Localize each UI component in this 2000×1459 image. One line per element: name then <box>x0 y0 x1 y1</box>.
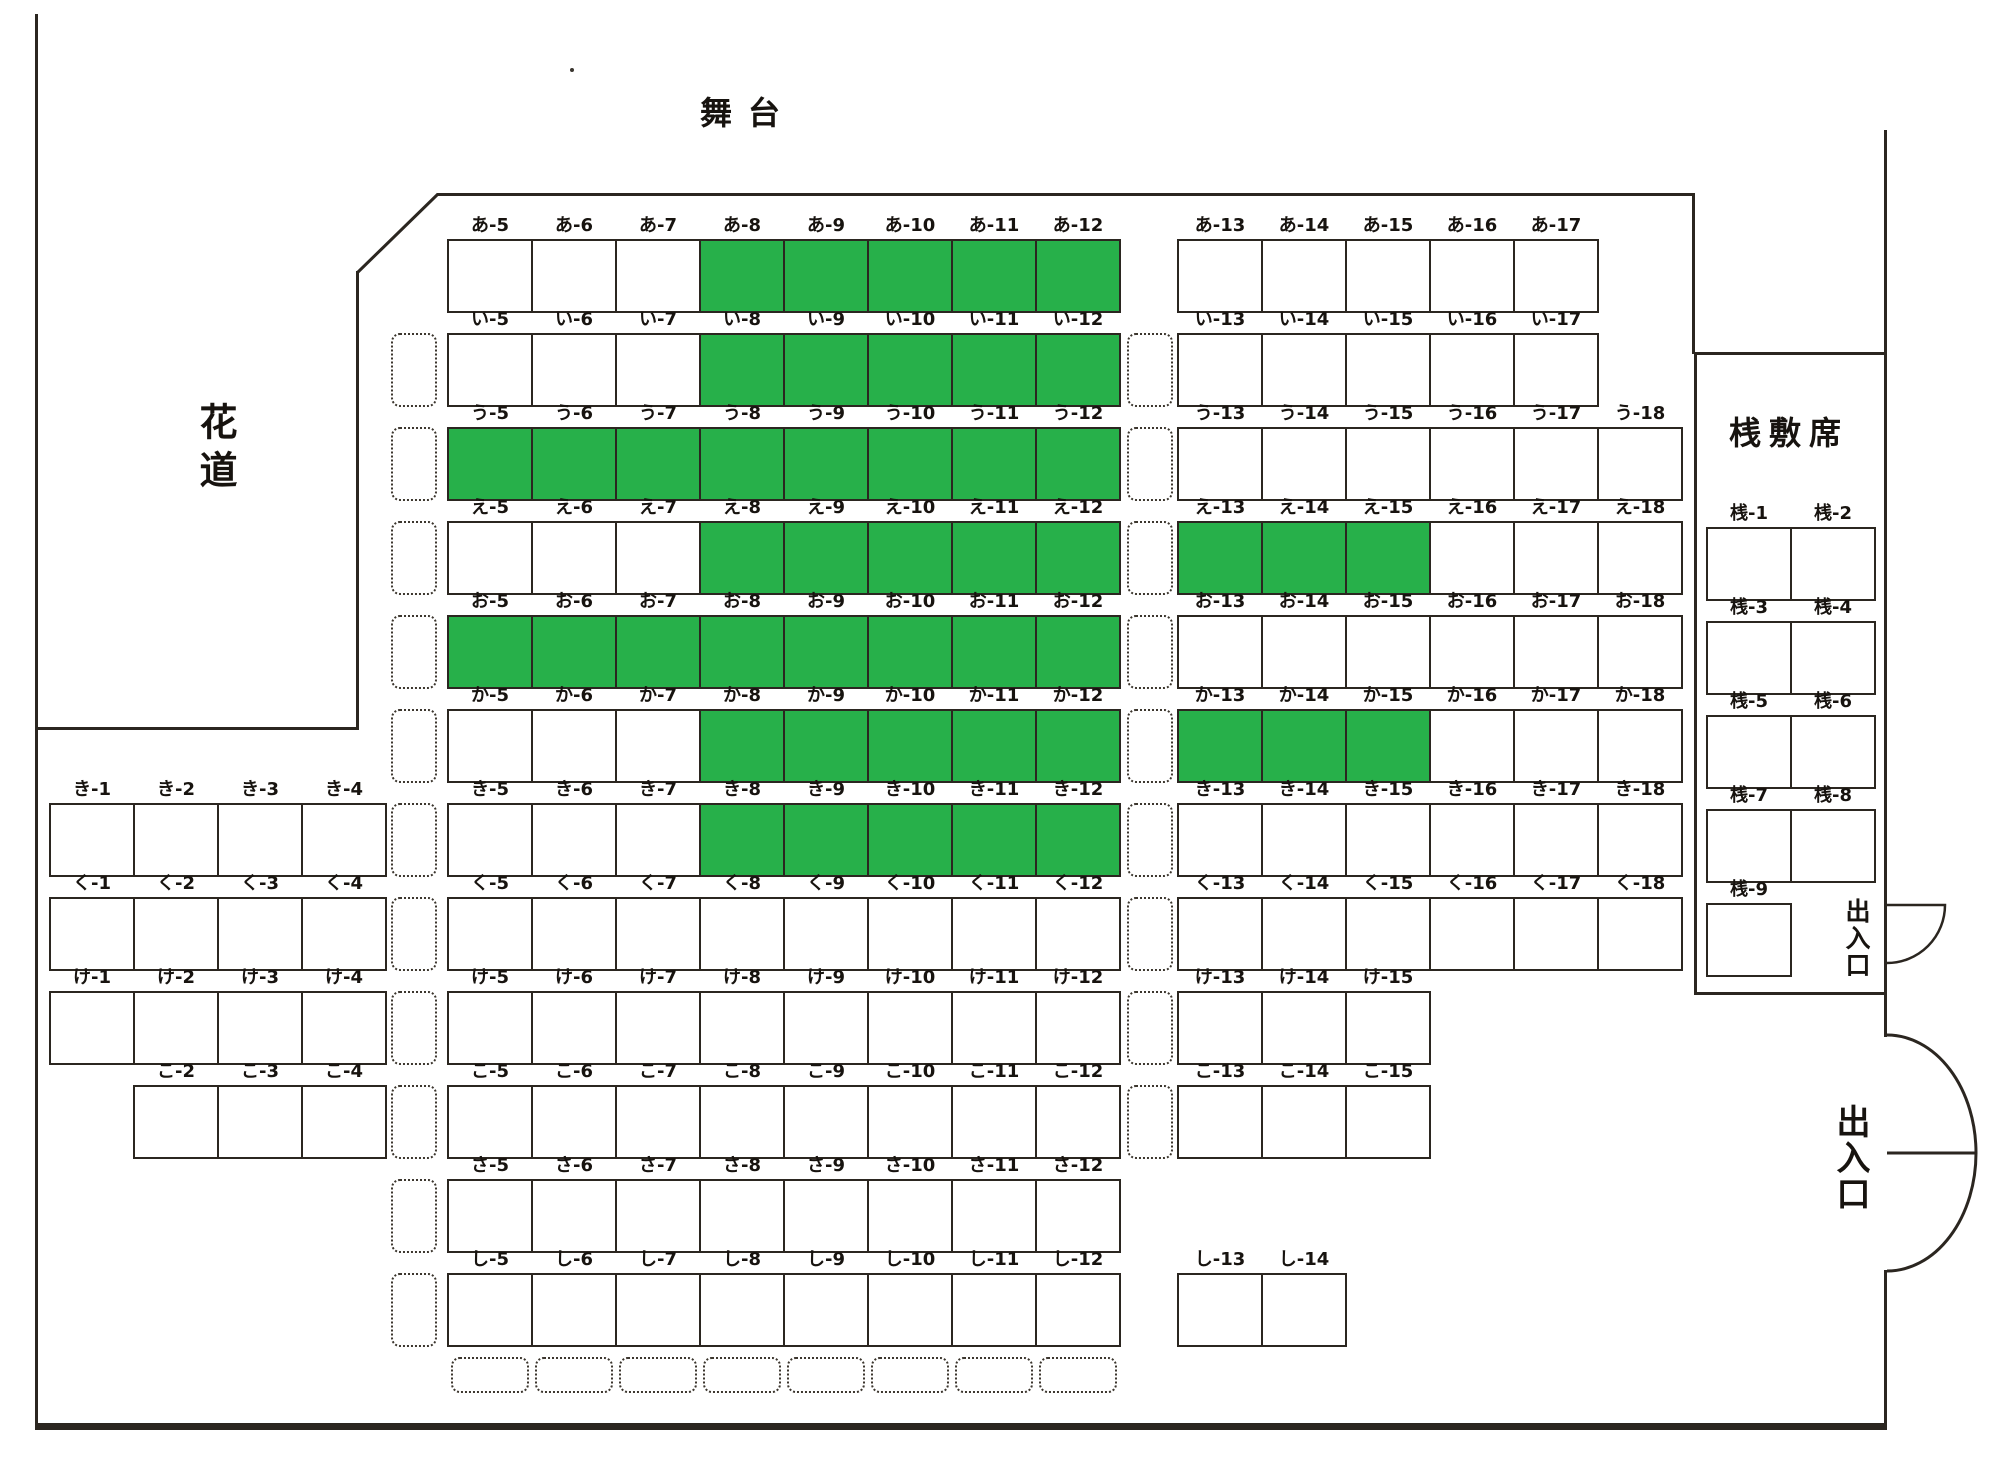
seat[interactable] <box>867 333 953 407</box>
seat[interactable] <box>1261 333 1347 407</box>
seat[interactable] <box>951 991 1037 1065</box>
seat[interactable] <box>1177 803 1263 877</box>
sajiki-seat[interactable] <box>1706 809 1792 883</box>
aisle-placeholder-box <box>1127 333 1173 407</box>
seat-label: け-7 <box>615 967 701 989</box>
seat-label: さ-6 <box>531 1155 617 1177</box>
seat[interactable] <box>1513 709 1599 783</box>
seat[interactable] <box>1261 897 1347 971</box>
seat[interactable] <box>1345 615 1431 689</box>
seat[interactable] <box>699 1179 785 1253</box>
seat[interactable] <box>301 897 387 971</box>
seat-label: い-13 <box>1177 309 1263 331</box>
seat[interactable] <box>447 1179 533 1253</box>
seat[interactable] <box>531 521 617 595</box>
seat[interactable] <box>1345 897 1431 971</box>
seat[interactable] <box>951 1273 1037 1347</box>
seat[interactable] <box>133 803 219 877</box>
seat-label: う-12 <box>1035 403 1121 425</box>
seat-label: え-11 <box>951 497 1037 519</box>
seat-label: か-6 <box>531 685 617 707</box>
seat[interactable] <box>531 709 617 783</box>
seat-label: い-17 <box>1513 309 1599 331</box>
seat-label: こ-12 <box>1035 1061 1121 1083</box>
seat[interactable] <box>1035 897 1121 971</box>
seat[interactable] <box>1177 991 1263 1065</box>
sajiki-seat-label: 桟-7 <box>1706 785 1792 807</box>
sajiki-seat-label: 桟-5 <box>1706 691 1792 713</box>
seat-label: お-13 <box>1177 591 1263 613</box>
seat-label: あ-13 <box>1177 215 1263 237</box>
seat[interactable] <box>951 709 1037 783</box>
seat-label: え-14 <box>1261 497 1347 519</box>
main-door-swing-icon <box>1887 1035 1976 1271</box>
seat[interactable] <box>1597 427 1683 501</box>
seat[interactable] <box>951 239 1037 313</box>
stage-label: 舞台 <box>628 88 868 134</box>
seat[interactable] <box>1261 709 1347 783</box>
seat-label: い-14 <box>1261 309 1347 331</box>
aisle-placeholder-box <box>391 1085 437 1159</box>
seat-label: お-9 <box>783 591 869 613</box>
seat[interactable] <box>49 897 135 971</box>
seat[interactable] <box>1035 427 1121 501</box>
seat[interactable] <box>133 897 219 971</box>
seat[interactable] <box>699 333 785 407</box>
seat[interactable] <box>951 615 1037 689</box>
seat-label: く-2 <box>133 873 219 895</box>
seat-label: あ-10 <box>867 215 953 237</box>
seat-label: く-18 <box>1597 873 1683 895</box>
seat[interactable] <box>1177 333 1263 407</box>
seat[interactable] <box>783 239 869 313</box>
seat[interactable] <box>615 1085 701 1159</box>
seat[interactable] <box>1597 615 1683 689</box>
seat-label: く-3 <box>217 873 303 895</box>
bottom-placeholder-box <box>1039 1357 1117 1393</box>
seat[interactable] <box>867 521 953 595</box>
seat-label: き-7 <box>615 779 701 801</box>
aisle-placeholder-box <box>391 521 437 595</box>
seat-label: か-8 <box>699 685 785 707</box>
seat-label: く-9 <box>783 873 869 895</box>
seat-label: き-5 <box>447 779 533 801</box>
aisle-placeholder-box <box>1127 897 1173 971</box>
seat[interactable] <box>1261 239 1347 313</box>
seat[interactable] <box>447 239 533 313</box>
seat[interactable] <box>1035 521 1121 595</box>
seat-label: え-16 <box>1429 497 1515 519</box>
aisle-placeholder-box <box>1127 1085 1173 1159</box>
seat[interactable] <box>615 521 701 595</box>
sajiki-seat-label: 桟-1 <box>1706 503 1792 525</box>
seat-label: く-11 <box>951 873 1037 895</box>
seat-label: く-13 <box>1177 873 1263 895</box>
seat[interactable] <box>699 709 785 783</box>
seat[interactable] <box>447 1085 533 1159</box>
seat[interactable] <box>1261 803 1347 877</box>
seat-label: あ-9 <box>783 215 869 237</box>
seat[interactable] <box>1345 333 1431 407</box>
seat[interactable] <box>1429 897 1515 971</box>
aisle-placeholder-box <box>391 897 437 971</box>
seat-label: お-15 <box>1345 591 1431 613</box>
seat-label: え-10 <box>867 497 953 519</box>
seat[interactable] <box>1429 615 1515 689</box>
seat[interactable] <box>217 991 303 1065</box>
seat-label: こ-5 <box>447 1061 533 1083</box>
seat-label: あ-8 <box>699 215 785 237</box>
seat[interactable] <box>783 615 869 689</box>
seat-label: う-16 <box>1429 403 1515 425</box>
seat[interactable] <box>1597 803 1683 877</box>
seat-label: け-5 <box>447 967 533 989</box>
seat[interactable] <box>133 991 219 1065</box>
seat-label: く-6 <box>531 873 617 895</box>
seat[interactable] <box>1345 803 1431 877</box>
seat[interactable] <box>615 991 701 1065</box>
seat[interactable] <box>1597 709 1683 783</box>
sajiki-door-swing-icon <box>1887 905 1945 963</box>
seat-label: え-6 <box>531 497 617 519</box>
seat[interactable] <box>531 897 617 971</box>
seat-label: け-9 <box>783 967 869 989</box>
seat-label: け-4 <box>301 967 387 989</box>
seat[interactable] <box>1177 427 1263 501</box>
seat[interactable] <box>783 521 869 595</box>
seat-label: え-5 <box>447 497 533 519</box>
seat[interactable] <box>531 239 617 313</box>
theater-seating-chart: 舞台 花道 桟敷席 出入口 出入口 あ-5あ-6あ-7あ-8あ-9あ-10あ-1… <box>0 0 2000 1459</box>
seat[interactable] <box>1035 803 1121 877</box>
seat[interactable] <box>867 709 953 783</box>
seat[interactable] <box>1035 615 1121 689</box>
seat-label: く-10 <box>867 873 953 895</box>
seat[interactable] <box>1429 333 1515 407</box>
seat-label: い-11 <box>951 309 1037 331</box>
seat-label: こ-8 <box>699 1061 785 1083</box>
seat[interactable] <box>951 897 1037 971</box>
seat[interactable] <box>447 897 533 971</box>
seat[interactable] <box>951 333 1037 407</box>
seat-label: え-18 <box>1597 497 1683 519</box>
seat[interactable] <box>699 803 785 877</box>
seat-label: こ-6 <box>531 1061 617 1083</box>
seat-label: き-2 <box>133 779 219 801</box>
seat-label: お-10 <box>867 591 953 613</box>
hanamichi-side-wall <box>356 271 359 730</box>
seat[interactable] <box>1345 991 1431 1065</box>
seat[interactable] <box>531 1179 617 1253</box>
sajiki-seat[interactable] <box>1790 809 1876 883</box>
seat[interactable] <box>615 1273 701 1347</box>
seat[interactable] <box>447 1273 533 1347</box>
seat[interactable] <box>1345 427 1431 501</box>
seat[interactable] <box>615 709 701 783</box>
seat-label: こ-4 <box>301 1061 387 1083</box>
seat-label: き-16 <box>1429 779 1515 801</box>
seat-label: え-7 <box>615 497 701 519</box>
seat[interactable] <box>447 615 533 689</box>
seat-label: か-15 <box>1345 685 1431 707</box>
seat[interactable] <box>531 427 617 501</box>
seat[interactable] <box>1177 1085 1263 1159</box>
aisle-placeholder-box <box>391 803 437 877</box>
seat[interactable] <box>531 615 617 689</box>
seat-label: い-7 <box>615 309 701 331</box>
seat[interactable] <box>783 333 869 407</box>
seat[interactable] <box>615 427 701 501</box>
seat[interactable] <box>699 1085 785 1159</box>
seat[interactable] <box>217 803 303 877</box>
seat-label: え-8 <box>699 497 785 519</box>
sajiki-seat[interactable] <box>1706 715 1792 789</box>
seat[interactable] <box>615 615 701 689</box>
seat[interactable] <box>1429 427 1515 501</box>
sajiki-seat[interactable] <box>1706 527 1792 601</box>
seat[interactable] <box>783 897 869 971</box>
seat-label: し-7 <box>615 1249 701 1271</box>
seat-label: く-7 <box>615 873 701 895</box>
seat[interactable] <box>1035 1179 1121 1253</box>
seat[interactable] <box>783 709 869 783</box>
seat-label: さ-9 <box>783 1155 869 1177</box>
seat[interactable] <box>1513 897 1599 971</box>
seat-label: き-1 <box>49 779 135 801</box>
sajiki-seat[interactable] <box>1790 715 1876 789</box>
bottom-wall <box>35 1423 1887 1430</box>
aisle-placeholder-box <box>391 1273 437 1347</box>
seat[interactable] <box>783 427 869 501</box>
seat[interactable] <box>699 615 785 689</box>
seat[interactable] <box>1035 1273 1121 1347</box>
seat[interactable] <box>1177 239 1263 313</box>
seat[interactable] <box>1035 239 1121 313</box>
seat-label: お-11 <box>951 591 1037 613</box>
seat[interactable] <box>49 803 135 877</box>
seat-label: こ-2 <box>133 1061 219 1083</box>
seat[interactable] <box>1261 427 1347 501</box>
seat[interactable] <box>615 803 701 877</box>
seat-label: か-7 <box>615 685 701 707</box>
seat-label: う-17 <box>1513 403 1599 425</box>
seat[interactable] <box>783 1273 869 1347</box>
seat-label: け-10 <box>867 967 953 989</box>
aisle-placeholder-box <box>391 333 437 407</box>
seat-label: お-8 <box>699 591 785 613</box>
seat[interactable] <box>1597 897 1683 971</box>
seat-label: き-15 <box>1345 779 1431 801</box>
seat[interactable] <box>783 1179 869 1253</box>
seat-label: し-11 <box>951 1249 1037 1271</box>
seat[interactable] <box>1035 1085 1121 1159</box>
seat[interactable] <box>1177 615 1263 689</box>
seat[interactable] <box>447 709 533 783</box>
seat-label: さ-10 <box>867 1155 953 1177</box>
seat[interactable] <box>867 1085 953 1159</box>
sajiki-seat-label: 桟-8 <box>1790 785 1876 807</box>
seat-label: し-9 <box>783 1249 869 1271</box>
seat[interactable] <box>1035 709 1121 783</box>
sajiki-seat[interactable] <box>1706 903 1792 977</box>
seat[interactable] <box>615 333 701 407</box>
seat[interactable] <box>783 1085 869 1159</box>
seat[interactable] <box>1513 427 1599 501</box>
seat[interactable] <box>1177 1273 1263 1347</box>
seat[interactable] <box>1035 333 1121 407</box>
seat[interactable] <box>531 1273 617 1347</box>
seat[interactable] <box>531 1085 617 1159</box>
sajiki-seat-label: 桟-6 <box>1790 691 1876 713</box>
seat-label: し-8 <box>699 1249 785 1271</box>
seat[interactable] <box>1345 239 1431 313</box>
bottom-placeholder-box <box>703 1357 781 1393</box>
seat[interactable] <box>951 1179 1037 1253</box>
seat-label: い-9 <box>783 309 869 331</box>
seat[interactable] <box>133 1085 219 1159</box>
seat[interactable] <box>447 427 533 501</box>
seat[interactable] <box>1035 991 1121 1065</box>
seat[interactable] <box>531 803 617 877</box>
seat-label: け-3 <box>217 967 303 989</box>
seat-label: え-12 <box>1035 497 1121 519</box>
seat-label: き-14 <box>1261 779 1347 801</box>
seat-label: き-9 <box>783 779 869 801</box>
seat[interactable] <box>1429 709 1515 783</box>
seat[interactable] <box>217 897 303 971</box>
seat[interactable] <box>699 991 785 1065</box>
seat[interactable] <box>1345 709 1431 783</box>
seat[interactable] <box>867 803 953 877</box>
seat[interactable] <box>531 333 617 407</box>
seat[interactable] <box>1513 239 1599 313</box>
seat-label: け-12 <box>1035 967 1121 989</box>
sajiki-seat[interactable] <box>1790 621 1876 695</box>
seat[interactable] <box>783 991 869 1065</box>
seat[interactable] <box>447 333 533 407</box>
seat[interactable] <box>783 803 869 877</box>
seat[interactable] <box>1597 521 1683 595</box>
seat-label: く-14 <box>1261 873 1347 895</box>
seat[interactable] <box>1261 991 1347 1065</box>
bottom-placeholder-box <box>451 1357 529 1393</box>
seat[interactable] <box>1513 803 1599 877</box>
aisle-placeholder-box <box>391 991 437 1065</box>
sajiki-seat[interactable] <box>1790 527 1876 601</box>
seat[interactable] <box>699 427 785 501</box>
seat[interactable] <box>699 1273 785 1347</box>
seat-label: く-8 <box>699 873 785 895</box>
seat[interactable] <box>301 991 387 1065</box>
seat[interactable] <box>699 521 785 595</box>
sajiki-seat-label: 桟-3 <box>1706 597 1792 619</box>
seat[interactable] <box>1345 1085 1431 1159</box>
seat-label: う-5 <box>447 403 533 425</box>
seat[interactable] <box>1261 521 1347 595</box>
seat-label: け-1 <box>49 967 135 989</box>
seat[interactable] <box>1513 333 1599 407</box>
seat[interactable] <box>867 1179 953 1253</box>
seat[interactable] <box>49 991 135 1065</box>
seat-label: き-3 <box>217 779 303 801</box>
seat-label: う-9 <box>783 403 869 425</box>
seat[interactable] <box>447 521 533 595</box>
seat[interactable] <box>951 427 1037 501</box>
seat[interactable] <box>867 239 953 313</box>
seat[interactable] <box>615 897 701 971</box>
seat-label: き-18 <box>1597 779 1683 801</box>
sajiki-section-label: 桟敷席 <box>1694 408 1884 454</box>
seat[interactable] <box>1261 615 1347 689</box>
seat-label: か-16 <box>1429 685 1515 707</box>
seat[interactable] <box>301 803 387 877</box>
seat[interactable] <box>867 991 953 1065</box>
seat[interactable] <box>217 1085 303 1159</box>
seat[interactable] <box>531 991 617 1065</box>
seat[interactable] <box>951 1085 1037 1159</box>
seat[interactable] <box>867 897 953 971</box>
seat-label: か-11 <box>951 685 1037 707</box>
seat[interactable] <box>1177 897 1263 971</box>
seat-label: い-15 <box>1345 309 1431 331</box>
sajiki-seat[interactable] <box>1706 621 1792 695</box>
seat-label: え-15 <box>1345 497 1431 519</box>
seat-label: か-18 <box>1597 685 1683 707</box>
right-wall-upper <box>1884 130 1887 354</box>
seat-label: か-17 <box>1513 685 1599 707</box>
seat[interactable] <box>1177 521 1263 595</box>
seat[interactable] <box>1345 521 1431 595</box>
seat[interactable] <box>1513 521 1599 595</box>
aisle-placeholder-box <box>1127 803 1173 877</box>
seat-label: し-14 <box>1261 1249 1347 1271</box>
aisle-placeholder-box <box>1127 427 1173 501</box>
seat[interactable] <box>1261 1273 1347 1347</box>
seat[interactable] <box>1429 803 1515 877</box>
seat[interactable] <box>447 803 533 877</box>
seat-label: か-14 <box>1261 685 1347 707</box>
seat[interactable] <box>951 803 1037 877</box>
sajiki-seat-label: 桟-4 <box>1790 597 1876 619</box>
seat-label: き-8 <box>699 779 785 801</box>
seat[interactable] <box>867 1273 953 1347</box>
seat[interactable] <box>447 991 533 1065</box>
seat-label: き-12 <box>1035 779 1121 801</box>
seat[interactable] <box>1177 709 1263 783</box>
seat[interactable] <box>867 615 953 689</box>
seat[interactable] <box>867 427 953 501</box>
aisle-placeholder-box <box>391 1179 437 1253</box>
seat-label: あ-11 <box>951 215 1037 237</box>
seat[interactable] <box>699 239 785 313</box>
seat[interactable] <box>615 1179 701 1253</box>
seat[interactable] <box>1261 1085 1347 1159</box>
seat[interactable] <box>1513 615 1599 689</box>
seat[interactable] <box>615 239 701 313</box>
seat[interactable] <box>951 521 1037 595</box>
seat[interactable] <box>699 897 785 971</box>
aisle-placeholder-box <box>1127 615 1173 689</box>
seat[interactable] <box>301 1085 387 1159</box>
seat-label: う-10 <box>867 403 953 425</box>
seat-label: く-4 <box>301 873 387 895</box>
seat-label: お-5 <box>447 591 533 613</box>
seat-label: し-13 <box>1177 1249 1263 1271</box>
seat-label: け-15 <box>1345 967 1431 989</box>
seat[interactable] <box>1429 239 1515 313</box>
seat-label: い-10 <box>867 309 953 331</box>
seat[interactable] <box>1429 521 1515 595</box>
